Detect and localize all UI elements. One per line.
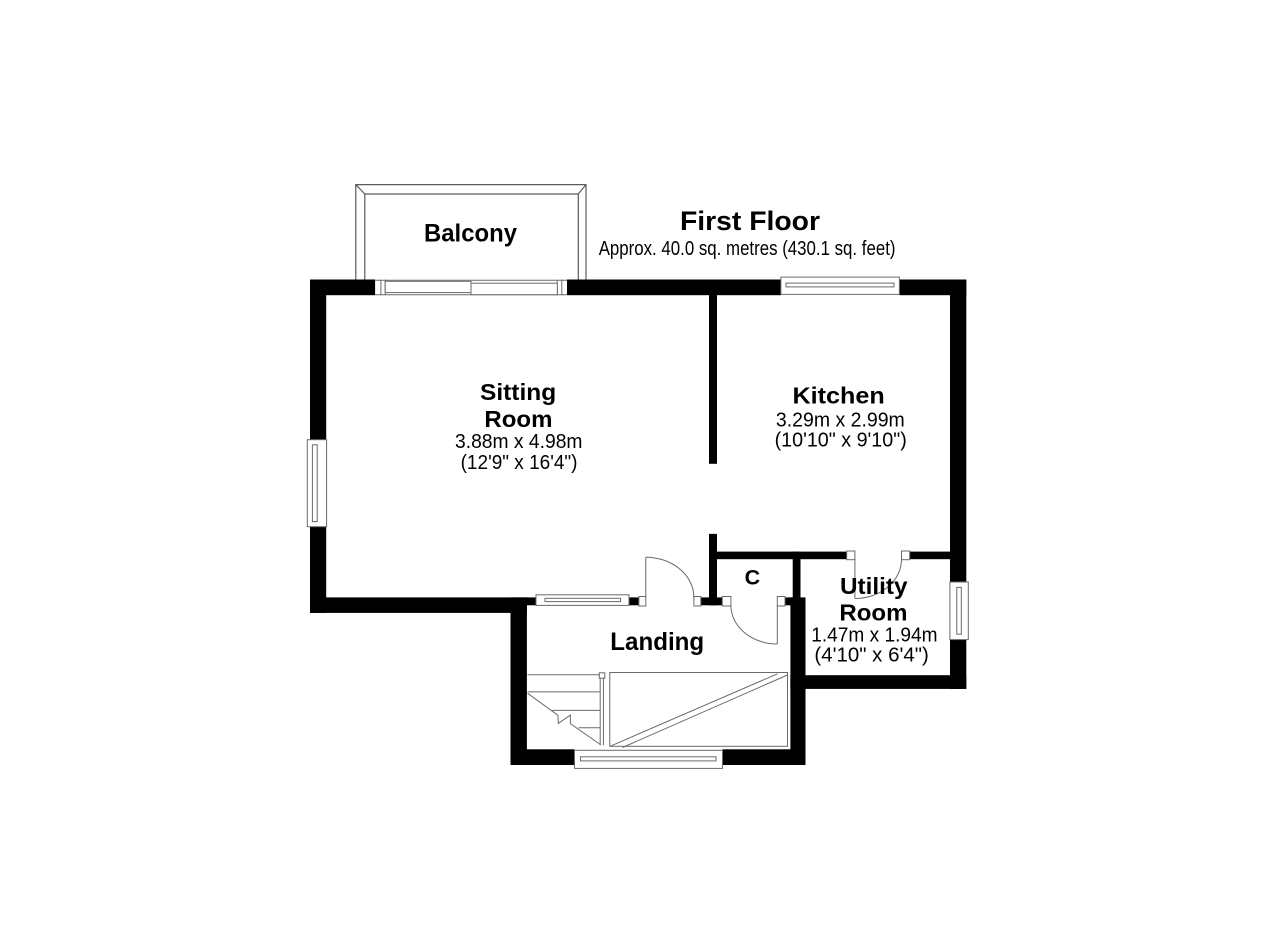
svg-text:3.29m x 2.99m: 3.29m x 2.99m [776,410,905,432]
svg-text:Approx. 40.0 sq. metres (430.1: Approx. 40.0 sq. metres (430.1 sq. feet) [599,238,896,260]
svg-text:Room: Room [839,600,907,626]
svg-text:Room: Room [484,406,552,432]
svg-text:(10'10" x 9'10"): (10'10" x 9'10") [775,430,907,452]
svg-text:Utility: Utility [840,573,908,599]
svg-text:C: C [745,566,761,590]
svg-text:Balcony: Balcony [424,221,517,248]
svg-text:Sitting: Sitting [480,379,556,405]
svg-text:(12'9" x 16'4"): (12'9" x 16'4") [461,452,578,474]
svg-text:1.47m x 1.94m: 1.47m x 1.94m [811,624,937,646]
svg-text:(4'10" x 6'4"): (4'10" x 6'4") [814,644,928,666]
svg-text:Landing: Landing [610,629,704,656]
svg-text:3.88m x 4.98m: 3.88m x 4.98m [455,431,583,453]
svg-text:Kitchen: Kitchen [793,383,885,409]
svg-text:First Floor: First Floor [680,206,821,236]
